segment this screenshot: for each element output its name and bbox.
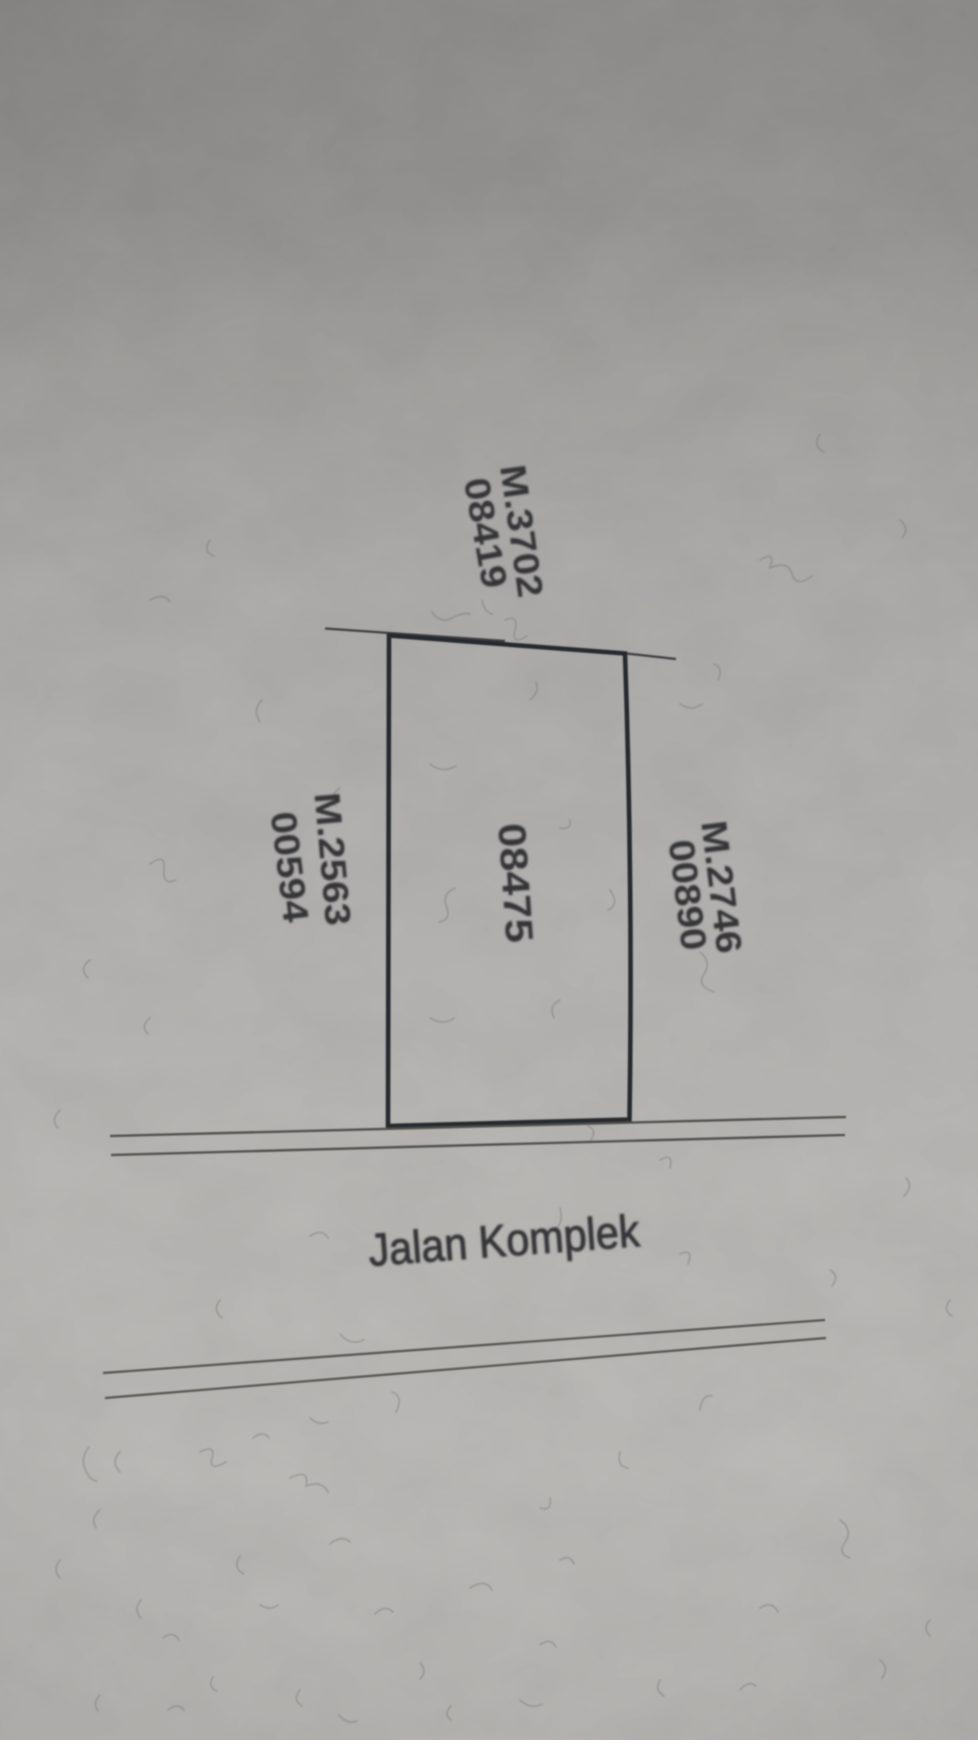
svg-text:08475: 08475 <box>490 822 542 944</box>
